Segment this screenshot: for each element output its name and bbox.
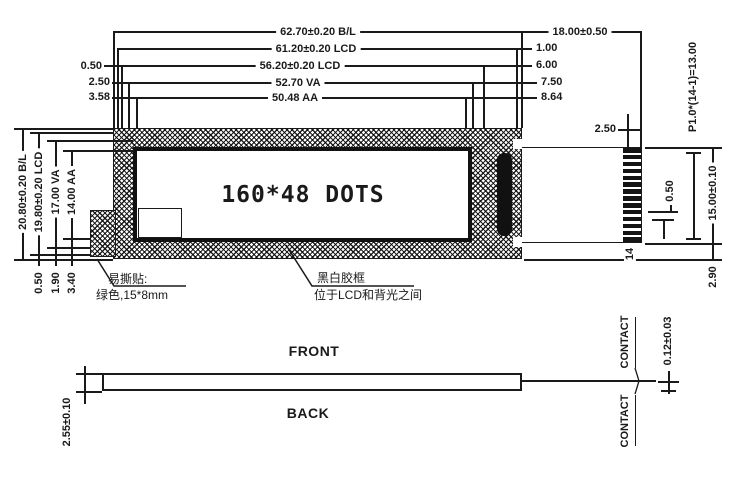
tear-off-sticker bbox=[90, 210, 116, 257]
contact-underline-bottom bbox=[635, 395, 636, 446]
ext-line bbox=[76, 373, 102, 375]
offset-line bbox=[618, 129, 641, 131]
dim-line-thickness bbox=[84, 366, 86, 404]
contact-label-bottom: CONTACT bbox=[619, 392, 631, 451]
offset-label-lcd-bottom: 0.50 bbox=[33, 269, 45, 296]
ext-line bbox=[113, 31, 115, 128]
sticker-note-line1: 易撕贴: bbox=[108, 272, 147, 286]
offset-line bbox=[38, 256, 40, 266]
ext-line bbox=[516, 48, 518, 128]
ext-line bbox=[14, 259, 113, 261]
ext-line bbox=[47, 140, 133, 142]
contact-label-top: CONTACT bbox=[619, 313, 631, 372]
ext-line bbox=[63, 238, 90, 240]
pin bbox=[623, 224, 641, 229]
pin bbox=[623, 189, 641, 194]
dim-label-va: 52.70 VA bbox=[271, 77, 324, 89]
bezel-note-line1: 黑白胶框 bbox=[317, 271, 365, 285]
pin bbox=[623, 196, 641, 201]
offset-line bbox=[71, 238, 73, 266]
ext-line bbox=[645, 243, 722, 245]
ext-line bbox=[47, 247, 90, 249]
tick bbox=[661, 390, 676, 392]
dim-label-pin-pitch: P1.0*(14-1)=13.00 bbox=[687, 39, 699, 135]
dim-label-lcd-outer: 61.20±0.20 LCD bbox=[272, 43, 361, 55]
sticker-note-line2: 绿色,15*8mm bbox=[96, 288, 168, 302]
offset-line bbox=[627, 114, 629, 147]
offset-line bbox=[104, 65, 121, 67]
pin bbox=[623, 148, 641, 153]
dim-label-tab-top-offset: 2.50 bbox=[586, 123, 616, 135]
offset-line bbox=[483, 65, 532, 67]
offset-line bbox=[516, 48, 532, 50]
tick bbox=[648, 211, 678, 213]
pin bbox=[623, 217, 641, 222]
pin bbox=[623, 231, 641, 236]
offset-label-va-right: 7.50 bbox=[541, 76, 562, 88]
ext-line bbox=[472, 82, 474, 128]
dim-label-contact-thickness: 0.12±0.03 bbox=[662, 314, 674, 369]
offset-label-va-bottom: 1.90 bbox=[50, 269, 62, 296]
pin-count-label: 14 bbox=[624, 245, 636, 263]
lcd-outline-drawing: 160*48 DOTS 62.70±0.20 B/L 61.20±0.20 LC… bbox=[0, 0, 750, 478]
offset-line bbox=[112, 82, 128, 84]
back-label: BACK bbox=[287, 405, 329, 421]
offset-label-lcd-outer-right: 1.00 bbox=[536, 42, 557, 54]
tick bbox=[686, 238, 701, 240]
offset-label-va-left: 2.50 bbox=[78, 76, 110, 88]
contact-underline-top bbox=[635, 317, 636, 368]
dim-label-thickness: 2.55±0.10 bbox=[61, 395, 73, 450]
offset-label-aa-bottom: 3.40 bbox=[66, 269, 78, 296]
dim-label-aa-v: 14.00 AA bbox=[66, 166, 78, 218]
offset-line bbox=[112, 97, 136, 99]
side-view-body bbox=[102, 373, 522, 391]
pin bbox=[623, 162, 641, 167]
offset-label-lcd-inner-right: 6.00 bbox=[536, 59, 557, 71]
pin bbox=[623, 155, 641, 160]
ext-line bbox=[136, 97, 138, 128]
offset-line bbox=[472, 82, 537, 84]
dim-label-lcd-inner: 56.20±0.20 LCD bbox=[256, 60, 345, 72]
body-notch-bottom bbox=[513, 237, 522, 247]
dim-label-bl: 62.70±0.20 B/L bbox=[276, 26, 360, 38]
ext-line bbox=[128, 82, 130, 128]
pin bbox=[623, 237, 641, 242]
dim-label-tab-bottom-offset: 2.90 bbox=[707, 263, 719, 290]
offset-label-aa-left: 3.58 bbox=[78, 91, 110, 103]
dim-label-tab-height: 15.00±0.10 bbox=[707, 163, 719, 224]
ext-line bbox=[645, 147, 722, 149]
offset-line bbox=[663, 219, 665, 239]
fpc-line bbox=[522, 380, 656, 382]
ext-line bbox=[465, 97, 467, 128]
offset-label-lcd-left: 0.50 bbox=[70, 60, 102, 72]
pin bbox=[623, 182, 641, 187]
body-notch-top bbox=[513, 139, 522, 149]
tick bbox=[658, 381, 679, 383]
offset-line bbox=[465, 97, 537, 99]
dim-line-pin-pitch bbox=[693, 152, 695, 238]
ext-line bbox=[76, 391, 102, 393]
ext-line bbox=[117, 48, 119, 128]
display-area-label: 160*48 DOTS bbox=[221, 182, 384, 208]
offset-line bbox=[670, 205, 672, 211]
pin bbox=[623, 203, 641, 208]
offset-line bbox=[55, 247, 57, 266]
dim-label-bl-v: 20.80±0.20 B/L bbox=[17, 151, 29, 233]
bezel-note-line2: 位于LCD和背光之间 bbox=[314, 288, 422, 302]
tick bbox=[686, 152, 701, 154]
dim-label-lcd-v: 19.80±0.20 LCD bbox=[33, 149, 45, 236]
dim-line-tab-bottom-offset bbox=[712, 243, 714, 259]
dim-label-pin-gap: 0.50 bbox=[664, 177, 676, 204]
pin bbox=[623, 176, 641, 181]
dim-label-tab-width: 18.00±0.50 bbox=[549, 26, 612, 38]
window-rect bbox=[138, 208, 182, 238]
pin-strip bbox=[623, 148, 641, 242]
pin bbox=[623, 169, 641, 174]
ext-line bbox=[30, 132, 113, 134]
ext-line bbox=[521, 31, 523, 128]
pin bbox=[623, 210, 641, 215]
zebra-bar bbox=[497, 153, 512, 236]
offset-label-aa-right: 8.64 bbox=[541, 91, 562, 103]
dim-label-aa: 50.48 AA bbox=[268, 92, 322, 104]
ext-line bbox=[63, 150, 133, 152]
dim-label-va-v: 17.00 VA bbox=[50, 166, 62, 217]
ext-line bbox=[14, 128, 113, 130]
front-label: FRONT bbox=[289, 343, 340, 359]
